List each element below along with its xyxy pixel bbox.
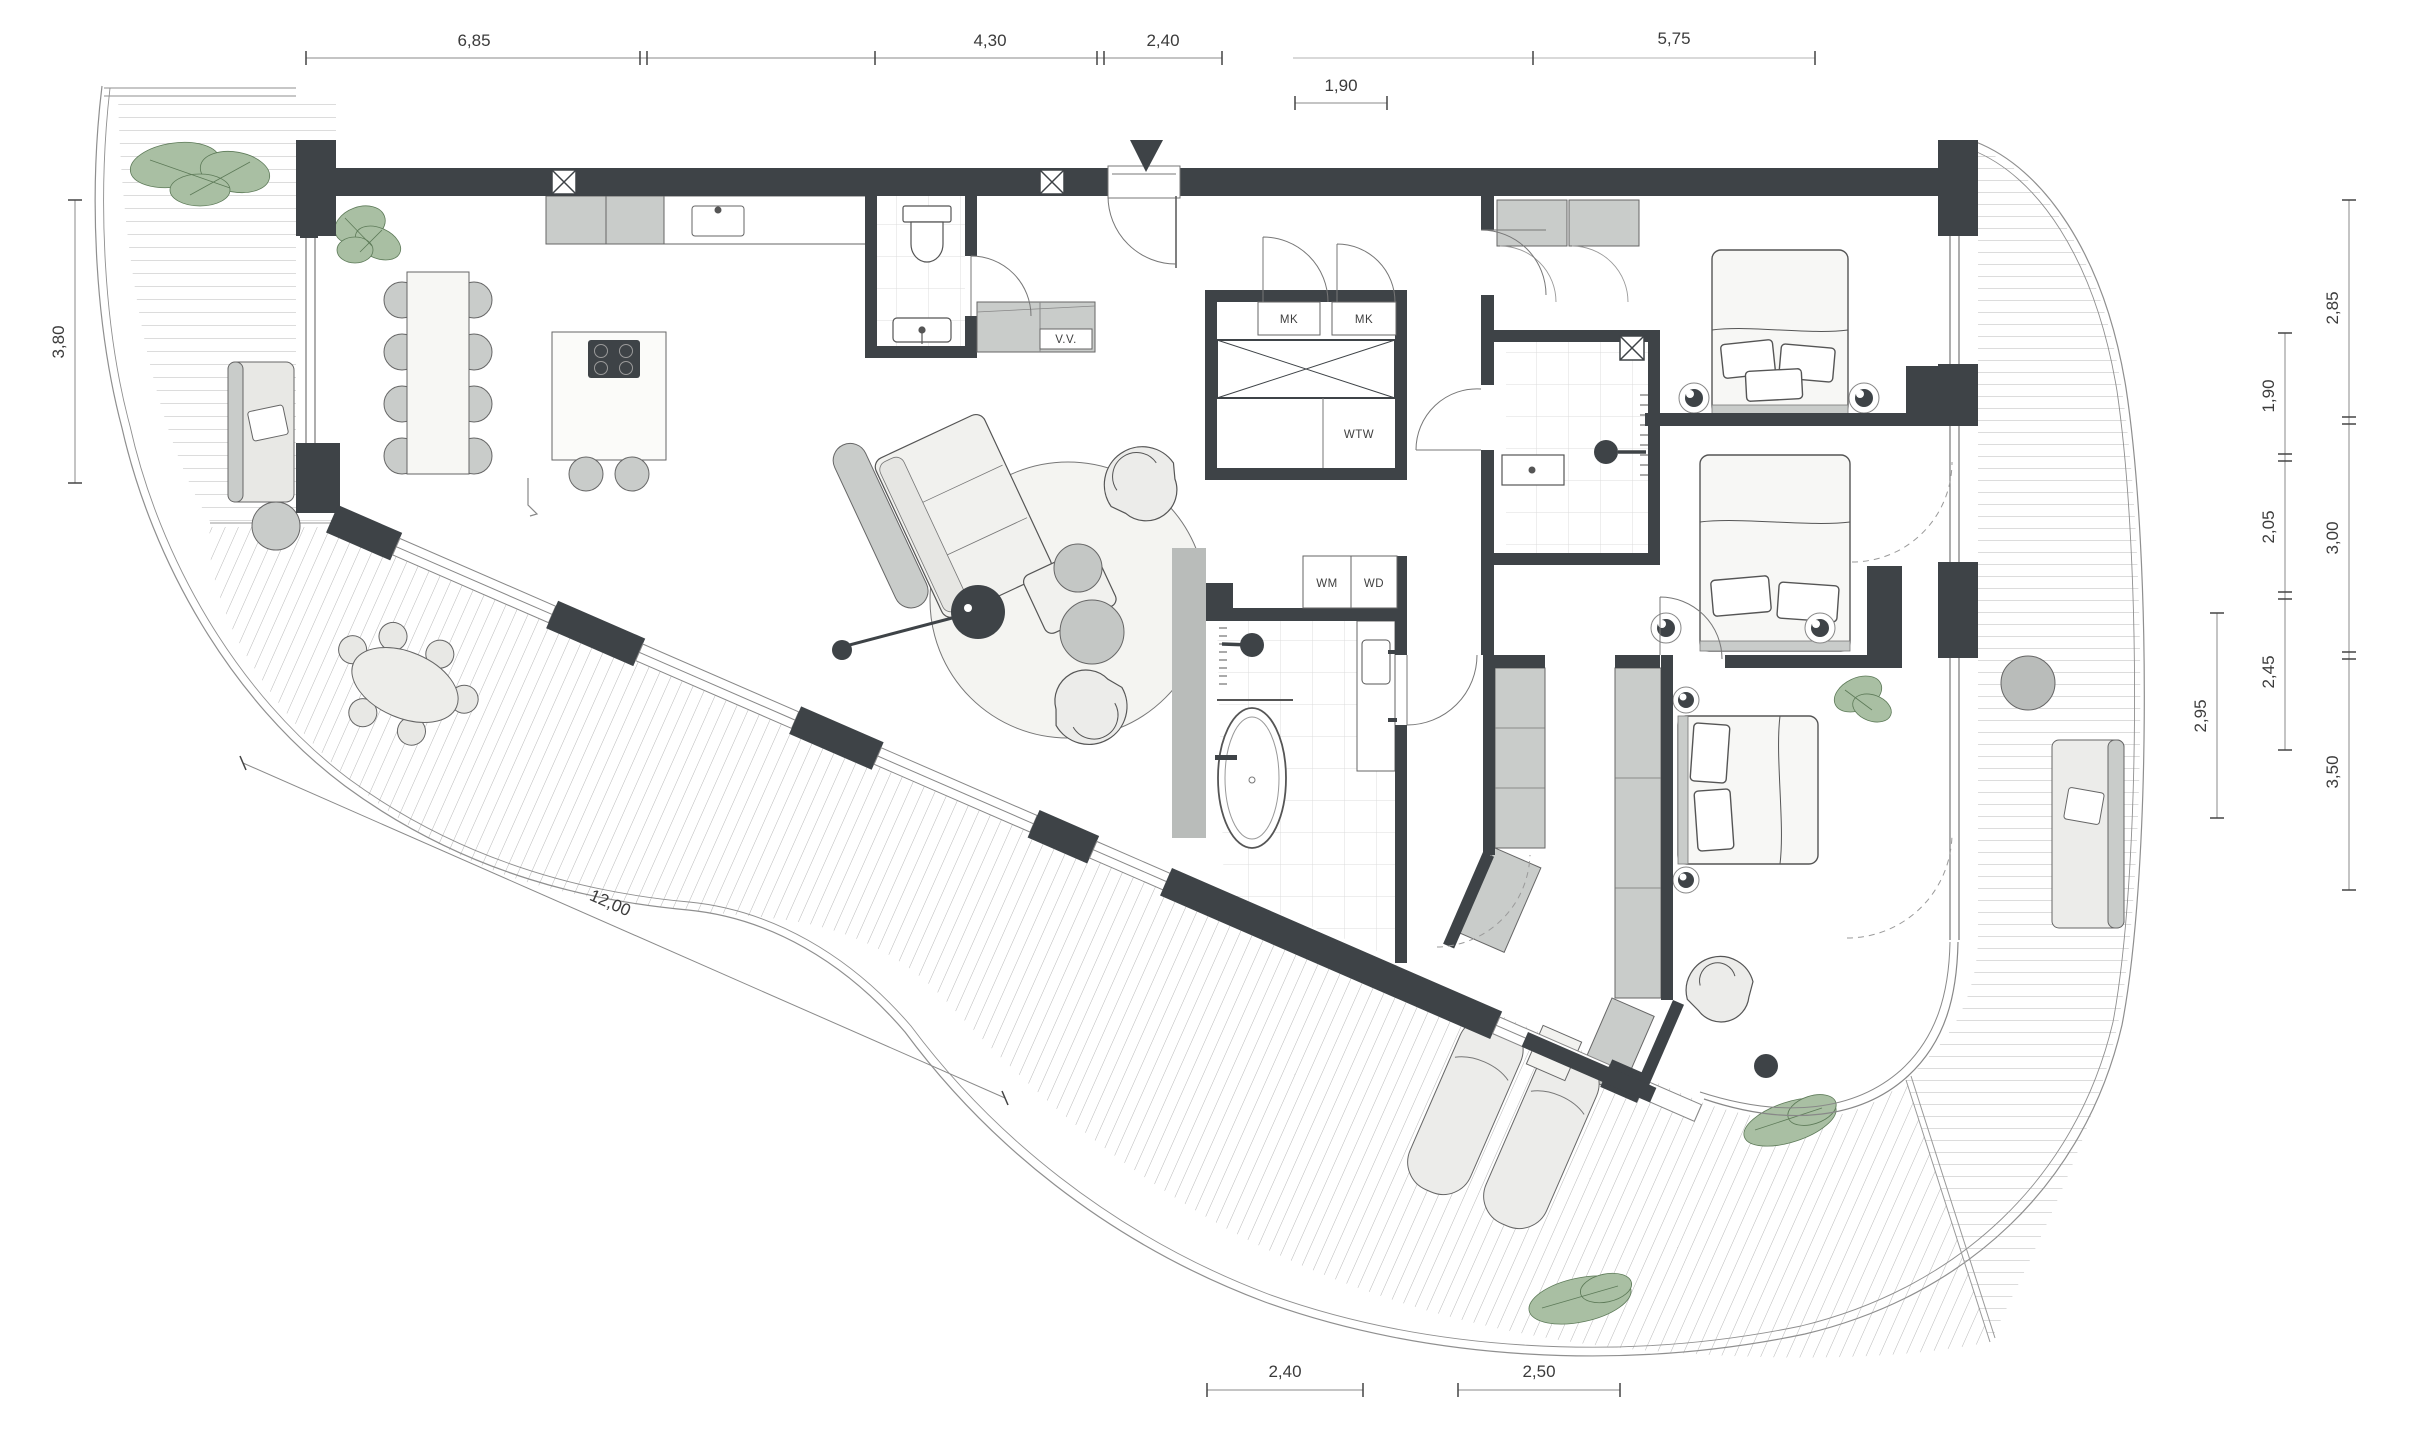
kitchen-tall-unit (606, 196, 664, 244)
wall (1648, 330, 1660, 565)
dining-table (407, 272, 469, 474)
tap-icon (1388, 718, 1397, 722)
wardrobe-run-left (1495, 668, 1545, 848)
shower-room-floor (1506, 342, 1648, 553)
side-table (1054, 544, 1102, 592)
outdoor-round-table (2001, 656, 2055, 710)
outdoor-sofa-back (228, 362, 243, 502)
wall (1481, 295, 1494, 385)
wc-cistern (903, 206, 951, 222)
wardrobe (1497, 200, 1567, 246)
dim-bottom-1: 2,40 (1268, 1362, 1301, 1381)
wall (1615, 655, 1660, 668)
wall (1395, 725, 1407, 963)
vent-icon (552, 170, 576, 194)
label-wm: WM (1316, 578, 1337, 590)
dim-right-outer-3: 3,50 (2323, 755, 2342, 788)
shower-icon (1594, 440, 1618, 464)
bed-1 (1712, 250, 1848, 415)
stool-icon (1754, 1054, 1778, 1078)
floor-plan-canvas: MK MK WTW WM WD V.V. (0, 0, 2432, 1440)
wall (1481, 450, 1494, 655)
tub-faucet-icon (1215, 755, 1237, 760)
hob-icon (588, 340, 640, 378)
wall (1938, 140, 1978, 236)
faucet-icon (1529, 467, 1536, 474)
wall (1645, 413, 1910, 426)
side-table (1060, 600, 1124, 664)
label-wd: WD (1364, 578, 1384, 590)
bar-stool (569, 457, 603, 491)
label-vv: V.V. (1055, 334, 1077, 346)
pillow (1694, 789, 1734, 851)
floor-plan: MK MK WTW WM WD V.V. (0, 0, 2432, 1440)
dim-right-outer-1: 2,85 (2323, 291, 2342, 324)
wardrobe-run-right (1615, 668, 1661, 998)
faucet-icon (919, 327, 925, 333)
deck-top-edge (104, 88, 296, 96)
wall (865, 346, 977, 358)
wall (1483, 655, 1495, 855)
pillow (2063, 787, 2104, 825)
wall (1205, 468, 1407, 480)
wall (1395, 290, 1407, 480)
wall (1205, 290, 1407, 302)
wall (1938, 364, 1978, 426)
dim-left: 3,80 (49, 325, 68, 358)
wall (1180, 168, 1938, 196)
wall (1867, 566, 1902, 668)
kitchen-faucet-icon (715, 207, 722, 214)
wall (1205, 608, 1407, 621)
label-mk-left: MK (1280, 314, 1298, 326)
wall (1395, 608, 1407, 655)
dim-right-detail: 2,95 (2191, 699, 2210, 732)
dim-right-inner-3: 2,45 (2259, 655, 2278, 688)
wall (965, 196, 977, 256)
dim-top-sub: 1,90 (1324, 76, 1357, 95)
basin-icon (1362, 640, 1390, 684)
kitchen-tall-unit (546, 196, 606, 244)
bar-stool (615, 457, 649, 491)
wall (1205, 290, 1217, 480)
wall (296, 140, 336, 236)
vanity (1357, 621, 1397, 771)
vent-icon (1620, 336, 1644, 360)
wall (1725, 655, 1867, 668)
label-wtw: WTW (1344, 429, 1374, 441)
pillow (1690, 723, 1730, 783)
wall (1481, 196, 1494, 230)
pillow (1745, 369, 1802, 402)
wall (1661, 655, 1673, 1000)
wall (1205, 583, 1233, 608)
bed-3 (1678, 716, 1818, 864)
wardrobe (1569, 200, 1639, 246)
dim-top-2: 4,30 (973, 31, 1006, 50)
dim-top-3: 2,40 (1146, 31, 1179, 50)
dim-top-1: 6,85 (457, 31, 490, 50)
toilet-icon (911, 222, 943, 262)
headboard (1678, 716, 1688, 864)
wall (1938, 562, 1978, 658)
wall (865, 196, 877, 358)
dim-bottom-2: 2,50 (1522, 1362, 1555, 1381)
wall (1906, 366, 1940, 426)
wall-structural (1172, 548, 1206, 838)
dim-right-inner-2: 2,05 (2259, 510, 2278, 543)
wall (296, 443, 340, 513)
headboard (1700, 641, 1850, 651)
pouf (252, 502, 300, 550)
dim-right-outer-2: 3,00 (2323, 521, 2342, 554)
dim-right-inner-1: 1,90 (2259, 379, 2278, 412)
wall (1494, 553, 1660, 565)
vent-icon (1040, 170, 1064, 194)
label-mk-right: MK (1355, 314, 1373, 326)
dim-top-4: 5,75 (1657, 29, 1690, 48)
wall (336, 168, 1108, 196)
outdoor-lounge-sofa-back (2108, 740, 2124, 928)
wall (965, 316, 977, 358)
pillow (1711, 576, 1772, 617)
